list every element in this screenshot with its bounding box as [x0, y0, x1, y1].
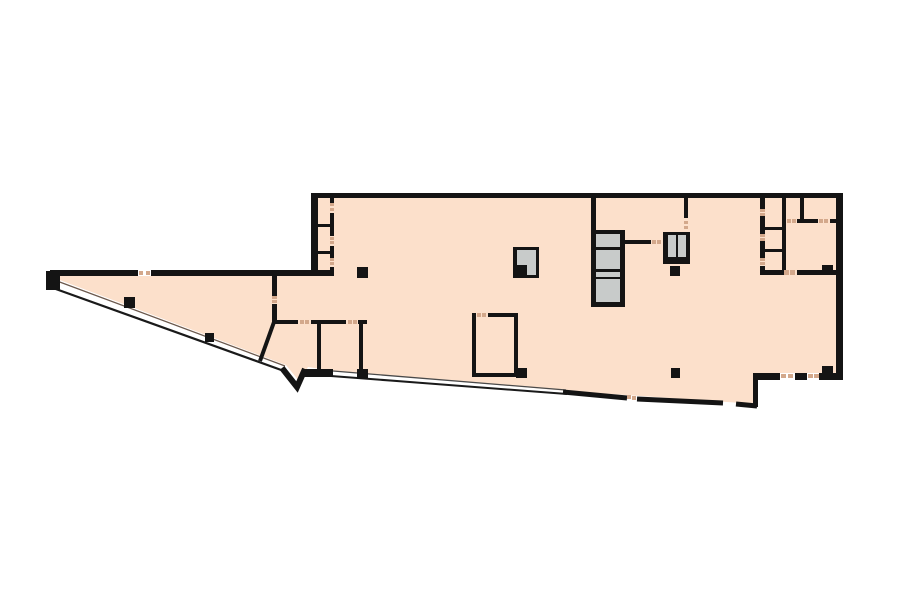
- closet-wall-d: [330, 267, 334, 271]
- door-tick: [781, 374, 786, 378]
- door-tick: [684, 226, 688, 229]
- br-step-wall: [753, 373, 758, 407]
- bottomleft-thick-bar: [303, 369, 333, 377]
- door-tick: [819, 219, 823, 223]
- door-tick: [272, 296, 277, 299]
- wedge-tip-corner: [46, 271, 60, 290]
- door-tick: [788, 374, 793, 378]
- column-6: [357, 369, 368, 379]
- door-tick: [760, 234, 765, 237]
- tr-vert760-wall-a: [760, 198, 765, 209]
- br-bottom-wall-b: [795, 373, 807, 380]
- door-tick: [146, 271, 150, 275]
- tr-bottom-wall-a: [760, 270, 783, 275]
- column-1: [357, 267, 368, 278]
- door-tick: [330, 241, 334, 244]
- right-outer-wall: [836, 193, 843, 380]
- door-tick: [787, 219, 791, 223]
- tr-divider-1: [760, 227, 782, 230]
- tr-vert782-wall: [782, 198, 786, 275]
- stair-cell-1: [668, 235, 676, 257]
- door-tick: [808, 374, 813, 378]
- door-tick: [477, 313, 481, 317]
- closet-divider-2: [315, 251, 334, 254]
- door-tick: [330, 208, 334, 211]
- bank-left-wall-upper: [591, 198, 596, 230]
- column-3: [124, 297, 135, 308]
- door-tick: [482, 313, 486, 317]
- middleroom-top-wall-b: [488, 313, 518, 317]
- wedge-vertical-wall-b: [272, 304, 277, 322]
- door-tick: [814, 374, 819, 378]
- left-outer-wall: [311, 193, 318, 276]
- door-tick: [348, 320, 352, 324]
- door-tick: [792, 219, 796, 223]
- door-tick: [627, 395, 631, 399]
- strip-wall-c: [358, 320, 367, 324]
- column-9: [822, 366, 833, 374]
- door-tick: [760, 238, 765, 241]
- tr-vert760-wall-b: [760, 216, 765, 234]
- stair-upper-wall: [684, 198, 688, 218]
- elevator-cell-2: [596, 250, 620, 269]
- door-tick: [657, 240, 661, 244]
- door-tick: [330, 258, 334, 261]
- door-tick: [353, 320, 357, 324]
- tr-horiz219-wall-b: [830, 219, 836, 223]
- door-tick: [632, 396, 636, 400]
- elevator-cell-1: [596, 234, 620, 247]
- closet-divider-1: [315, 224, 334, 227]
- column-8: [822, 265, 833, 275]
- column-2: [670, 266, 680, 276]
- tr-horiz219-wall-a: [797, 219, 818, 223]
- middleroom-bottom-wall: [472, 373, 518, 377]
- bottomleft-room-right-wall: [359, 324, 363, 370]
- door-tick: [760, 209, 765, 212]
- door-tick: [790, 270, 795, 275]
- door-tick: [684, 221, 688, 224]
- stair-cell-2: [678, 235, 686, 257]
- middleroom-right-wall: [514, 313, 518, 377]
- bottomleft-room-left-wall: [317, 324, 321, 371]
- door-tick: [824, 219, 828, 223]
- column-7: [671, 368, 680, 378]
- middleroom-left-wall: [472, 313, 476, 377]
- door-tick: [300, 320, 304, 324]
- br-bottom-wall-c: [819, 373, 843, 380]
- wedge-vertical-wall-a: [272, 274, 277, 296]
- door-tick: [330, 237, 334, 240]
- strip-wall-b: [311, 320, 346, 324]
- strip-wall-a: [272, 320, 298, 324]
- closet-wall-a: [330, 198, 334, 203]
- door-tick: [330, 262, 334, 265]
- column-4: [205, 333, 214, 342]
- floor-plan-svg: [0, 0, 900, 604]
- floor-plan: [0, 0, 900, 604]
- door-tick: [760, 213, 765, 216]
- door-tick: [652, 240, 656, 244]
- bank-link-wall: [625, 240, 651, 244]
- elevator-cell-4: [596, 279, 620, 302]
- column-5: [516, 368, 527, 378]
- wedge-top-wall-b: [151, 270, 334, 276]
- wedge-top-wall-a: [50, 270, 138, 276]
- door-tick: [330, 203, 334, 206]
- elevator-cell-3: [596, 272, 620, 277]
- door-tick: [305, 320, 309, 324]
- door-tick: [784, 270, 789, 275]
- tr-divider-2: [760, 249, 782, 252]
- door-tick: [139, 271, 143, 275]
- door-tick: [760, 258, 765, 261]
- service-shaft-notch: [516, 265, 527, 278]
- top-outer-wall: [311, 193, 843, 198]
- door-tick: [272, 300, 277, 303]
- door-tick: [760, 262, 765, 265]
